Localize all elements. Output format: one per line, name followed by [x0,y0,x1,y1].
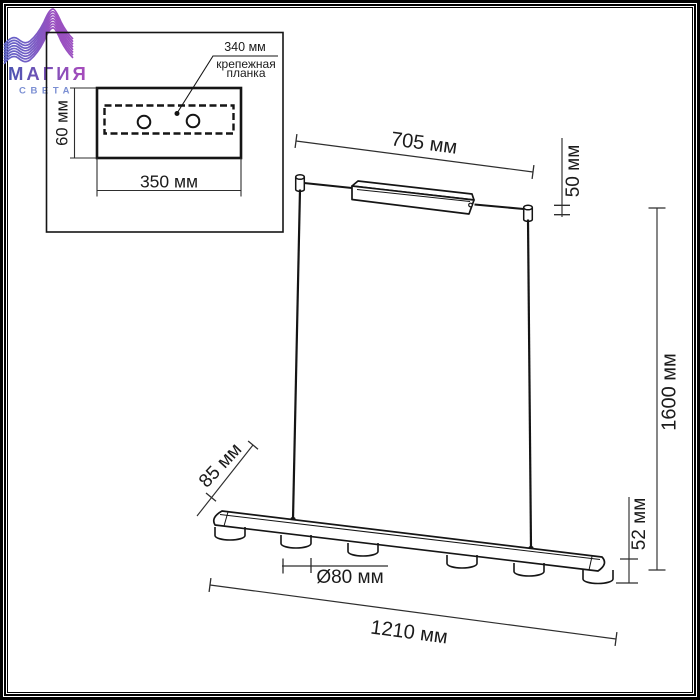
dimension-suspension-height: 1600 мм [659,353,682,431]
dimension-bar-end-height: 52 мм [629,498,651,551]
inset-bracket-length-label: 340 мм [224,40,266,54]
canopy-cable-left [304,183,352,188]
lamp-puck-4 [447,555,477,568]
pendant-fixture [214,175,613,584]
screw-hole-right [187,115,200,128]
logo-brand-text: МАГИЯ [8,63,89,84]
wire-gripper-right [524,205,533,221]
dimension-canopy-height: 50 мм [563,145,585,198]
inset-bracket-name-line2: планка [227,68,266,78]
lamp-puck-1 [215,527,245,540]
diagram-canvas: МАГИЯ СВЕТА [0,0,700,700]
lamp-puck-5 [514,563,544,576]
screw-hole-left [138,116,151,129]
wire-gripper-left [296,175,305,192]
technical-drawing-page: { "logo": { "brand": "МАГИЯ", "subtitle"… [0,0,700,700]
canopy-cable-hole [469,203,473,207]
suspension-wire-left [293,190,300,520]
ceiling-canopy [352,181,474,214]
lamp-puck-3 [348,543,378,556]
lamp-puck-6 [583,570,613,584]
inset-plate-width-label: 350 мм [140,172,198,193]
logo-wave-icon [4,9,73,64]
dimension-lamp-diameter: Ø80 мм [316,567,383,589]
mounting-bracket-dashed [105,106,234,134]
canopy-cable-right [475,205,524,210]
inset-plate-height-label: 60 мм [54,100,73,146]
suspension-wire-right [528,220,531,549]
leader-dot [175,111,180,116]
lamp-puck-2 [281,535,311,548]
light-bar [214,511,605,571]
mounting-plate-outline [97,88,241,158]
